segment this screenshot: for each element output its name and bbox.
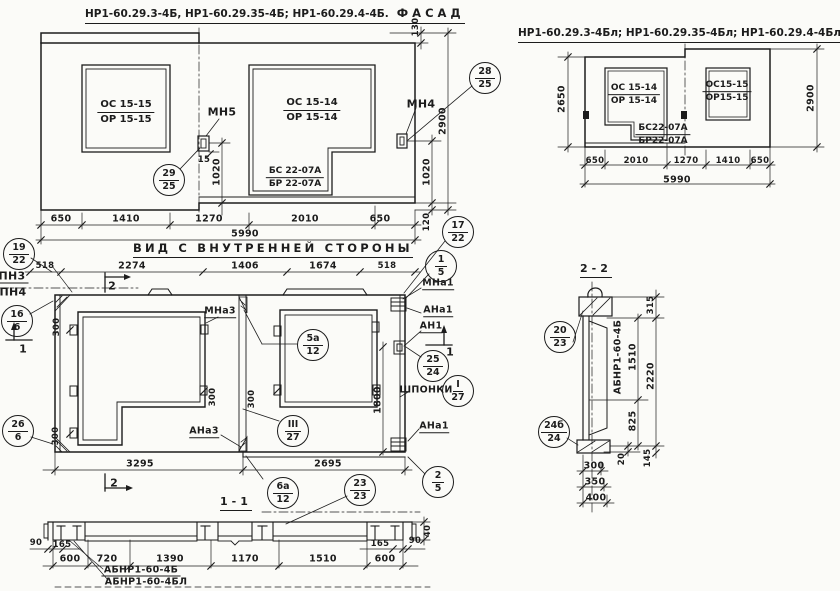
section-mark-2: 2 (110, 477, 118, 490)
anchor-label-mn4: МН4 (407, 99, 436, 110)
dim-label: 650 (586, 157, 605, 166)
dim-label: 1020 (212, 158, 222, 186)
callout-16-6: 166 (1, 305, 33, 337)
axis-label-pn4: ПН4 (0, 287, 26, 298)
facade-left-title-ids: НР1-60.29.3-4Б, НР1-60.29.35-4Б; НР1-60.… (85, 8, 389, 20)
inner-window-1 (78, 312, 205, 445)
callout-2-5: 25 (422, 466, 454, 498)
dim-label: 315 (647, 296, 656, 315)
facade-right-title: НР1-60.29.3-4Бл; НР1-60.29.35-4Бл; НР1-6… (518, 26, 840, 43)
dim-label: 720 (97, 554, 118, 564)
dim-label: 518 (36, 262, 55, 271)
sill-mark: БС22-07АБР22-07А (635, 123, 690, 147)
dim-label: 650 (751, 157, 770, 166)
dim-label: 90 (30, 539, 42, 548)
panel-mark: АБНР1-60-4БЛ (105, 577, 188, 587)
dim-label: 400 (586, 493, 607, 503)
callout-19-22: 1922 (3, 238, 35, 270)
dim-label: 1510 (309, 554, 337, 564)
callout-20-23: 2023 (544, 321, 576, 353)
inner-view-outline (55, 295, 405, 452)
dim-label: 15 (198, 156, 210, 165)
section-mark-1: 1 (19, 343, 27, 356)
callout-29-25: 2925 (153, 164, 185, 196)
dim-label: 650 (370, 214, 391, 224)
dim-label: 518 (378, 262, 397, 271)
dim-label: 2650 (557, 85, 567, 113)
dim-label: 1510 (628, 343, 638, 371)
anchor-label-mn5: МН5 (208, 107, 237, 118)
dim-label: 300 (584, 461, 605, 471)
dim-label: 300 (52, 427, 61, 446)
lifting-loop (588, 288, 602, 297)
dim-label: 2010 (291, 214, 319, 224)
anchor-label-mna3: МНа3 (204, 306, 236, 318)
dim-label: 2010 (624, 157, 649, 166)
anchor-label-ana1b: АНа1 (419, 421, 449, 433)
blueprint-sheet: НР1-60.29.3-4Б, НР1-60.29.35-4Б; НР1-60.… (0, 0, 840, 591)
dim-label: 165 (53, 541, 72, 550)
dim-label: 1406 (231, 261, 259, 271)
dim-label: 300 (209, 388, 218, 407)
section-1-1-title: 1-1 (220, 496, 252, 511)
callout-26-6: 266 (2, 415, 34, 447)
inner-window-2 (280, 310, 377, 407)
callout-25-24: 2524 (417, 350, 449, 382)
dim-label: 1410 (716, 157, 741, 166)
dim-label: 1410 (112, 214, 140, 224)
callout-III-27: III27 (277, 415, 309, 447)
dim-label: 90 (409, 537, 421, 546)
dim-label: 1270 (674, 157, 699, 166)
dim-label: 2695 (314, 459, 342, 469)
callout-17-22: 1722 (442, 216, 474, 248)
dim-label: 1390 (156, 554, 184, 564)
window-mark: ОС 15-14ОР 15-14 (283, 97, 340, 123)
callout-24b-24: 24б24 (538, 416, 570, 448)
dim-label: 300 (53, 318, 62, 337)
dim-label: 300 (248, 390, 257, 409)
dim-label: 20 (618, 453, 627, 465)
dim-label: 3295 (126, 459, 154, 469)
window-mark: ОС15-15ОР15-15 (702, 80, 751, 104)
dim-label: 1674 (309, 261, 337, 271)
dim-label: 1800 (373, 386, 383, 414)
dim-label: 350 (585, 477, 606, 487)
anchor-label-ana1: АНа1 (423, 305, 453, 317)
facade-left-title-word: ФАСАД (389, 6, 465, 20)
dim-label: 1020 (422, 158, 432, 186)
dim-label: 600 (375, 554, 396, 564)
dim-label: 2220 (646, 362, 656, 390)
dim-label: 1270 (195, 214, 223, 224)
dim-label: 145 (644, 449, 653, 468)
dim-label-total: 5990 (663, 175, 691, 185)
section-mark-2: 2 (108, 280, 116, 293)
dim-label: 40 (424, 525, 433, 537)
dim-label: 165 (371, 540, 390, 549)
dim-label: 2274 (118, 261, 146, 271)
facade-right-title-ids: НР1-60.29.3-4Бл; НР1-60.29.35-4Бл; НР1-6… (518, 27, 840, 39)
section-2-2-title: 2-2 (580, 263, 612, 278)
window-mark: ОС 15-15ОР 15-15 (97, 99, 154, 125)
dim-label-total: 5990 (231, 229, 259, 239)
axis-label-pn3: ПН3 (0, 271, 25, 282)
dim-label: 130 (412, 18, 421, 37)
sill-mark: БС 22-07АБР 22-07А (266, 166, 324, 190)
dim-label: 120 (423, 213, 432, 232)
dim-label: 1170 (231, 554, 259, 564)
dim-label: 600 (60, 554, 81, 564)
callout-23-23: 2323 (344, 474, 376, 506)
callout-28-25: 2825 (469, 62, 501, 94)
panel-mark: АБНР1-60-4Б (104, 565, 178, 575)
section-mark-1: 1 (446, 346, 454, 359)
panel-mark-vertical: АБНР1-60-4Б (613, 320, 623, 394)
dim-label: 2900 (438, 107, 448, 135)
facade-left-title: НР1-60.29.3-4Б, НР1-60.29.35-4Б; НР1-60.… (85, 7, 465, 24)
anchor-label-ana3: АНа3 (189, 426, 219, 438)
inner-view-title: ВИД С ВНУТРЕННЕЙ СТОРОНЫ (133, 242, 413, 258)
anchor-mn4-element (397, 134, 407, 148)
dim-label: 2900 (806, 84, 816, 112)
callout-6a-12: 6а12 (267, 477, 299, 509)
dim-label: 825 (628, 411, 638, 432)
callout-5a-12: 5а12 (297, 329, 329, 361)
window-mark: ОС 15-14ОР 15-14 (608, 83, 660, 107)
callout-1-5: 15 (425, 250, 457, 282)
callout-I-27: I27 (442, 375, 474, 407)
dim-label: 650 (51, 214, 72, 224)
anchor-label-an1: АН1 (420, 321, 443, 333)
